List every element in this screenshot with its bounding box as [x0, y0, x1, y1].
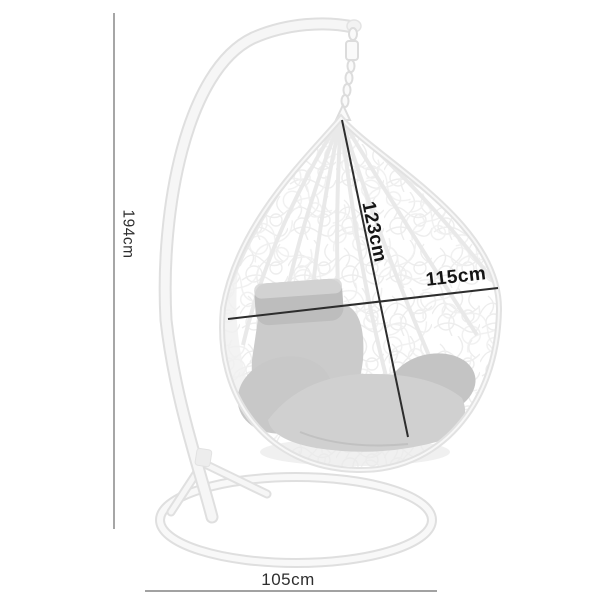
dimension-label-total-height: 194cm [120, 209, 137, 258]
dimension-label-base-width: 105cm [261, 570, 315, 589]
egg-chair-diagram: 194cm 123cm 115cm 105cm [0, 0, 600, 600]
pole-joint [195, 448, 212, 467]
product-dimension-image: 194cm 123cm 115cm 105cm [0, 0, 600, 600]
headrest-pillow [254, 278, 345, 326]
egg-chair [200, 100, 520, 490]
chain [336, 28, 358, 120]
